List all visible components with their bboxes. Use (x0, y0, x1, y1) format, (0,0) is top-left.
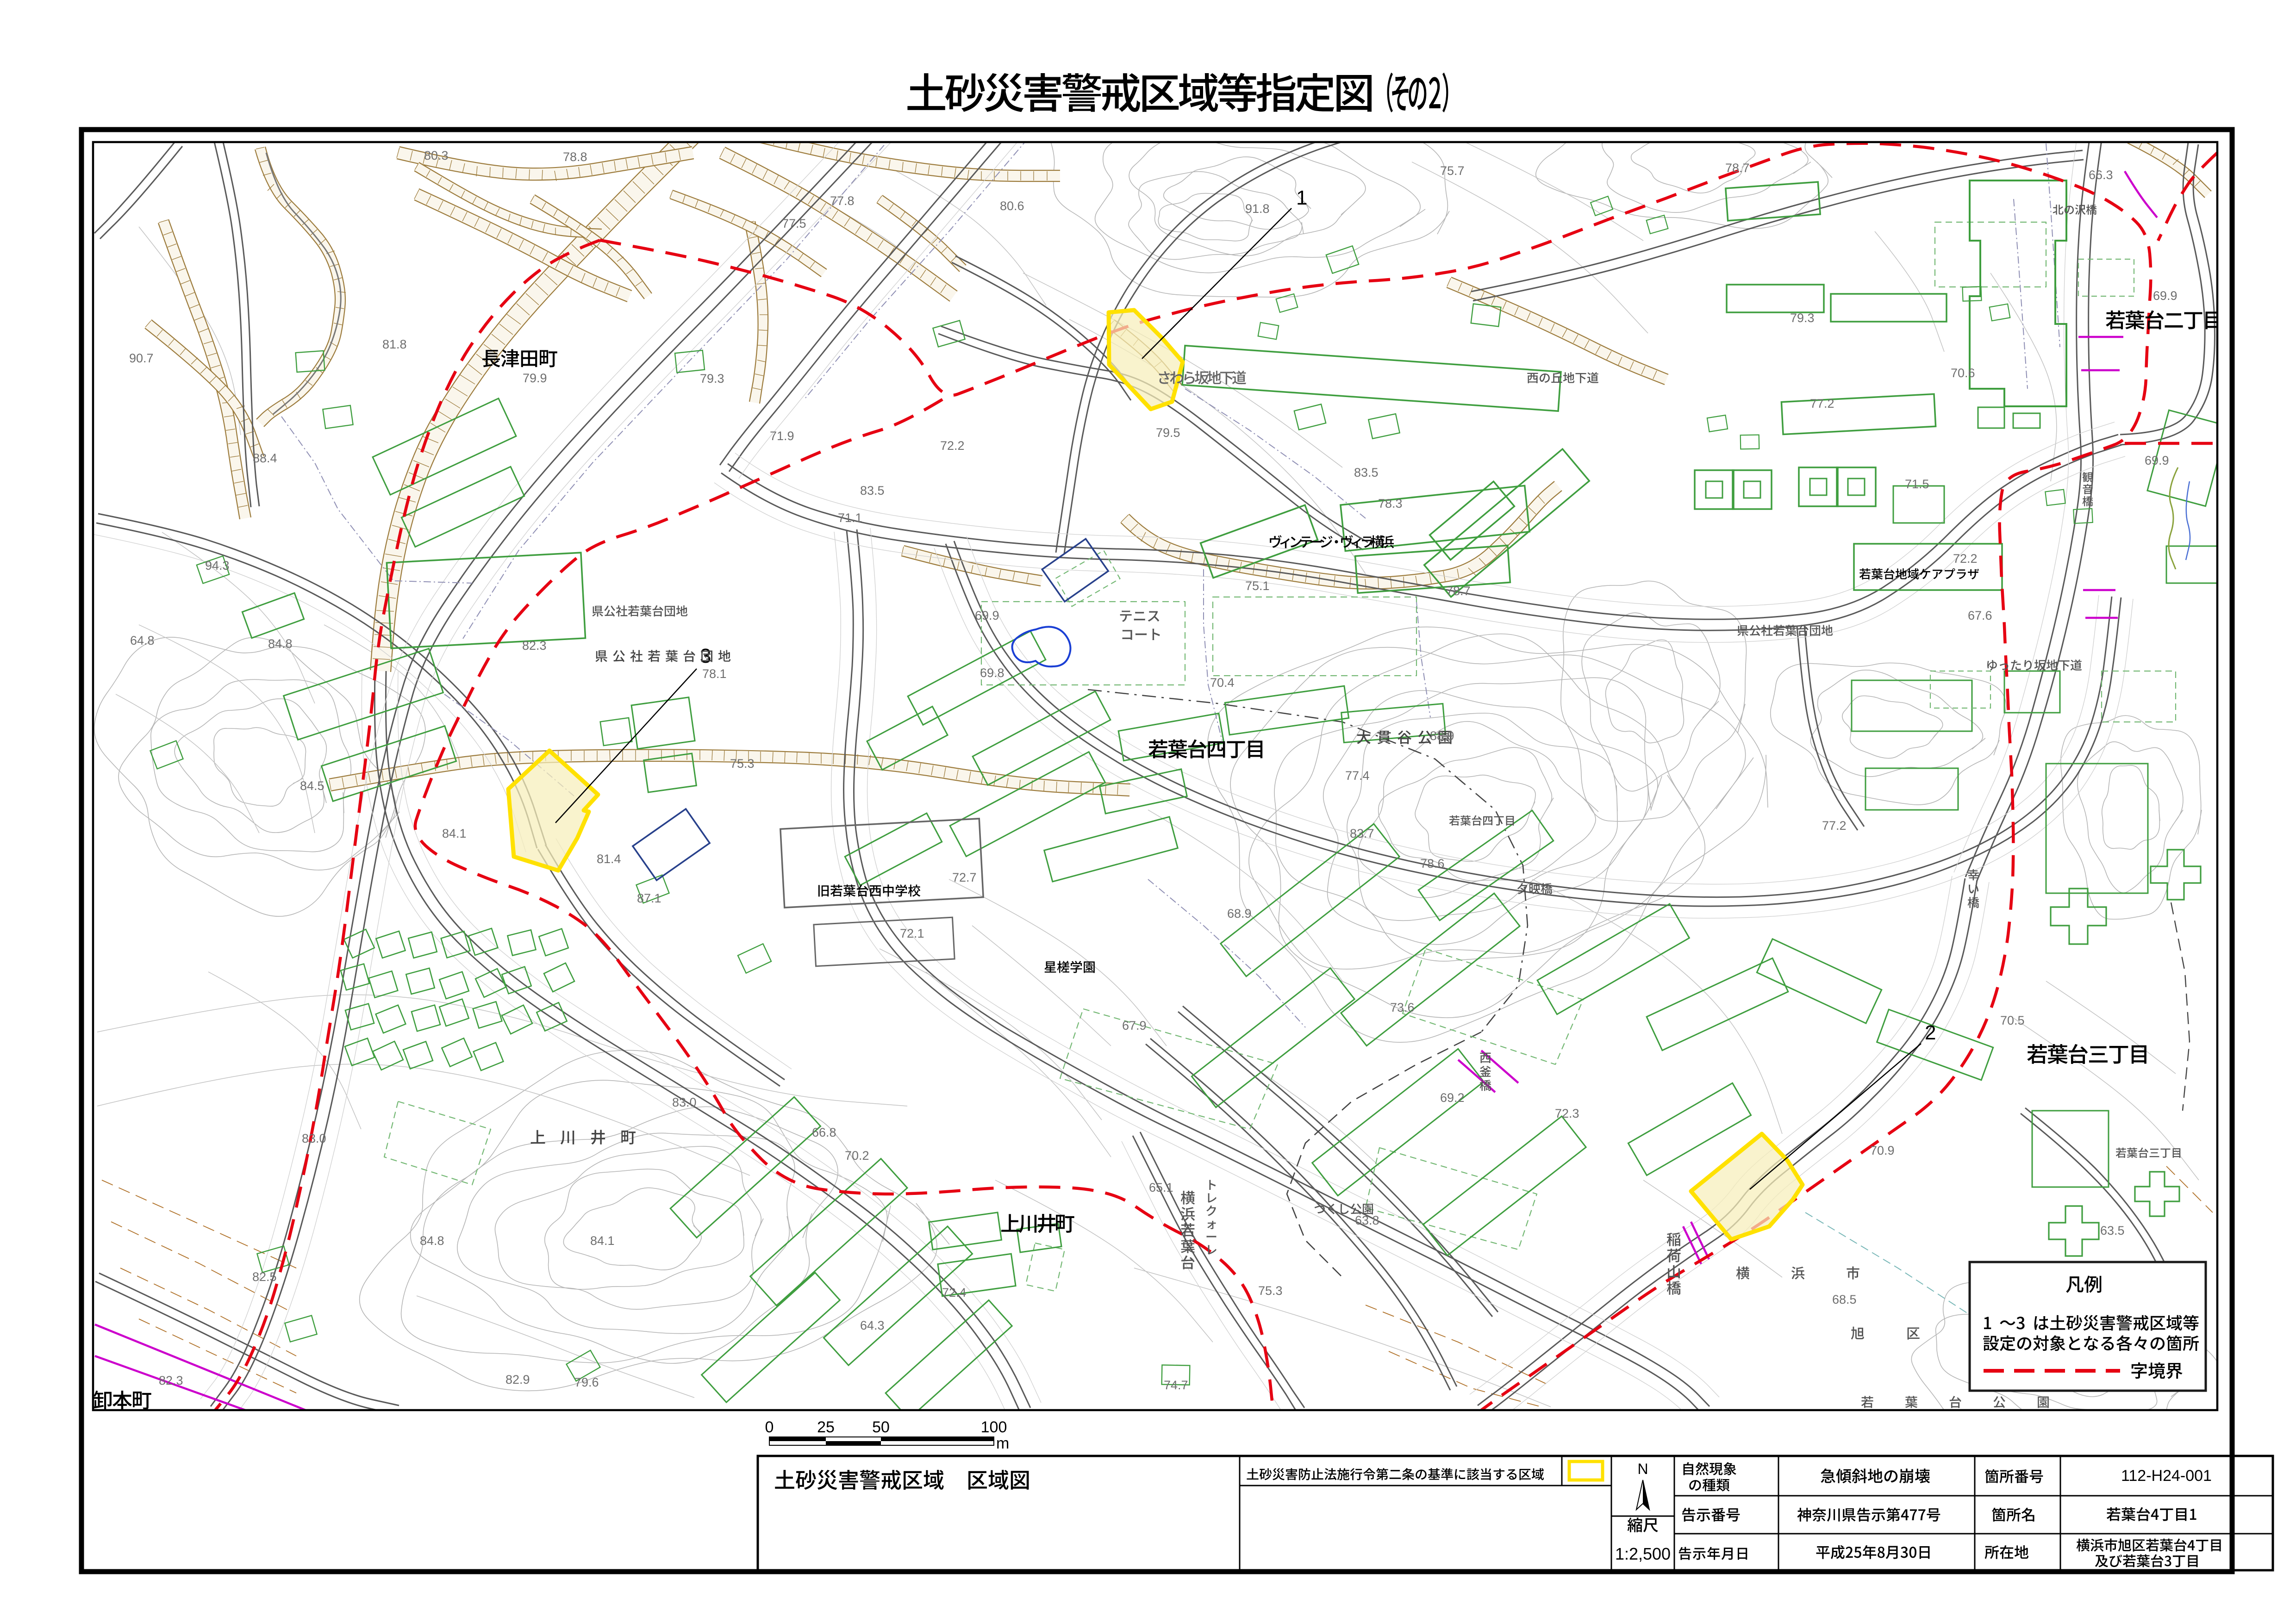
svg-text:69.9: 69.9 (975, 609, 999, 622)
svg-text:64.3: 64.3 (860, 1318, 885, 1332)
svg-text:66.3: 66.3 (2089, 168, 2113, 182)
svg-text:25: 25 (817, 1418, 835, 1436)
svg-text:82.9: 82.9 (505, 1373, 530, 1387)
svg-text:74.7: 74.7 (1164, 1378, 1188, 1392)
svg-text:68.5: 68.5 (1832, 1293, 1857, 1306)
svg-text:0: 0 (765, 1418, 774, 1436)
svg-text:88.4: 88.4 (253, 451, 277, 465)
svg-text:78.6: 78.6 (1420, 857, 1445, 871)
svg-text:78.7: 78.7 (1725, 161, 1750, 175)
svg-text:112-H24-001: 112-H24-001 (2121, 1467, 2212, 1485)
svg-text:65.1: 65.1 (1149, 1181, 1173, 1194)
svg-text:84.1: 84.1 (442, 827, 467, 840)
svg-text:78.1: 78.1 (702, 667, 727, 681)
svg-text:71.5: 71.5 (1905, 477, 1929, 491)
svg-text:72.1: 72.1 (900, 927, 924, 940)
svg-text:72.7: 72.7 (952, 871, 977, 884)
svg-text:78.3: 78.3 (1378, 497, 1403, 510)
svg-text:70.5: 70.5 (2000, 1014, 2025, 1027)
svg-text:87.1: 87.1 (637, 891, 661, 905)
svg-text:66.8: 66.8 (812, 1126, 836, 1139)
svg-text:70.2: 70.2 (845, 1149, 869, 1163)
svg-text:73.6: 73.6 (1390, 1001, 1415, 1014)
svg-text:77.4: 77.4 (1345, 769, 1370, 783)
svg-text:68.9: 68.9 (1227, 907, 1252, 920)
svg-text:80.3: 80.3 (424, 149, 449, 162)
svg-text:75.3: 75.3 (1258, 1284, 1283, 1298)
svg-text:84.5: 84.5 (300, 779, 324, 793)
svg-text:83.7: 83.7 (1350, 827, 1374, 840)
svg-text:69.8: 69.8 (980, 666, 1004, 680)
svg-text:64.8: 64.8 (130, 634, 155, 647)
svg-text:75.3: 75.3 (730, 757, 755, 771)
svg-text:81.4: 81.4 (597, 852, 621, 866)
svg-text:83.0: 83.0 (302, 1132, 326, 1145)
svg-text:m: m (996, 1435, 1009, 1452)
svg-text:77.2: 77.2 (1810, 397, 1834, 410)
svg-text:79.3: 79.3 (1790, 311, 1815, 325)
svg-text:70.4: 70.4 (1210, 676, 1235, 690)
svg-text:83.0: 83.0 (672, 1095, 697, 1109)
svg-text:71.9: 71.9 (770, 429, 794, 443)
svg-text:69.2: 69.2 (1440, 1091, 1465, 1105)
svg-text:78.7: 78.7 (1446, 584, 1471, 598)
svg-text:67.9: 67.9 (1122, 1019, 1147, 1032)
svg-text:69.9: 69.9 (2145, 454, 2169, 467)
svg-text:69.9: 69.9 (2153, 289, 2177, 303)
svg-text:78.8: 78.8 (563, 150, 587, 164)
svg-text:88.9: 88.9 (1430, 729, 1454, 743)
svg-text:83.5: 83.5 (860, 484, 885, 497)
svg-text:72.2: 72.2 (1953, 552, 1978, 566)
svg-text:N: N (1637, 1461, 1648, 1477)
svg-text:80.6: 80.6 (1000, 199, 1024, 213)
svg-text:1: 1 (1296, 187, 1307, 209)
svg-text:90.7: 90.7 (129, 351, 154, 365)
svg-text:1:2,500: 1:2,500 (1615, 1544, 1671, 1563)
svg-text:81.8: 81.8 (382, 337, 407, 351)
svg-text:72.2: 72.2 (940, 439, 965, 453)
svg-text:77.2: 77.2 (1822, 819, 1847, 833)
svg-text:82.5: 82.5 (252, 1270, 277, 1284)
svg-text:72.4: 72.4 (942, 1286, 967, 1300)
svg-text:100: 100 (981, 1418, 1007, 1436)
svg-text:72.3: 72.3 (1555, 1107, 1579, 1120)
svg-text:79.3: 79.3 (700, 372, 724, 386)
svg-text:77.8: 77.8 (830, 194, 855, 208)
svg-text:82.3: 82.3 (522, 639, 547, 653)
svg-text:50: 50 (872, 1418, 890, 1436)
svg-text:79.5: 79.5 (1156, 426, 1180, 440)
svg-text:71.1: 71.1 (838, 511, 862, 525)
svg-text:77.5: 77.5 (782, 217, 806, 230)
svg-text:83.5: 83.5 (1354, 466, 1379, 479)
svg-text:67.6: 67.6 (1968, 609, 1992, 622)
svg-text:84.8: 84.8 (420, 1234, 444, 1248)
svg-text:63.5: 63.5 (2100, 1224, 2125, 1237)
svg-text:91.8: 91.8 (1245, 202, 1270, 216)
svg-text:79.9: 79.9 (523, 371, 547, 385)
svg-text:63.8: 63.8 (1355, 1213, 1379, 1227)
svg-text:2: 2 (1925, 1021, 1936, 1044)
svg-text:75.7: 75.7 (1440, 164, 1465, 178)
svg-text:75.1: 75.1 (1245, 579, 1270, 593)
svg-text:70.6: 70.6 (1951, 366, 1975, 380)
svg-text:79.6: 79.6 (574, 1375, 599, 1389)
svg-text:84.8: 84.8 (268, 637, 293, 651)
svg-text:70.9: 70.9 (1870, 1144, 1895, 1157)
svg-text:94.3: 94.3 (205, 559, 230, 572)
svg-text:82.3: 82.3 (159, 1374, 183, 1387)
svg-text:84.1: 84.1 (590, 1234, 615, 1248)
